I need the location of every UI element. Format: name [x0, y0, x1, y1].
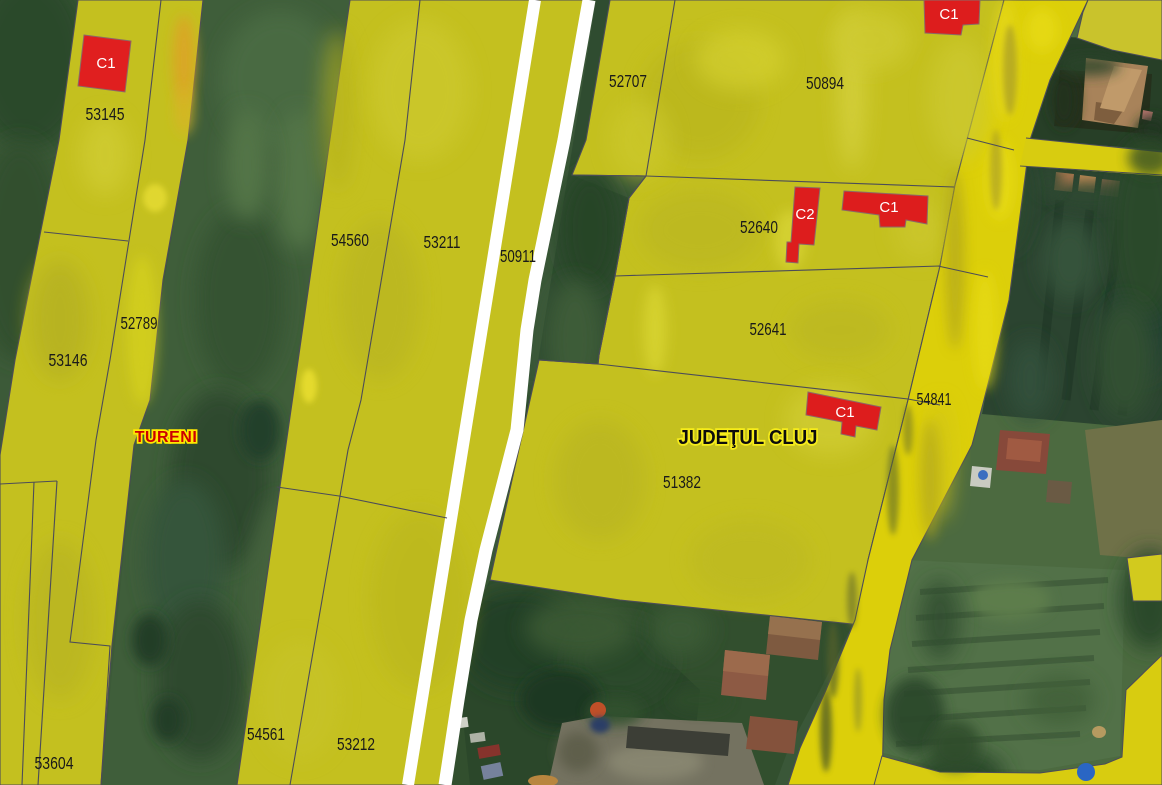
- svg-text:54560: 54560: [331, 230, 369, 250]
- svg-text:53604: 53604: [35, 753, 74, 773]
- svg-text:C1: C1: [939, 6, 958, 23]
- svg-text:52707: 52707: [609, 71, 647, 91]
- svg-text:53211: 53211: [424, 232, 461, 252]
- svg-text:53145: 53145: [86, 104, 125, 124]
- svg-text:C2: C2: [795, 206, 814, 223]
- svg-text:51382: 51382: [663, 472, 701, 492]
- svg-text:50894: 50894: [806, 73, 844, 93]
- svg-text:50911: 50911: [500, 246, 536, 266]
- svg-text:C1: C1: [835, 404, 854, 421]
- svg-text:C1: C1: [879, 199, 898, 216]
- svg-text:TURENI: TURENI: [135, 429, 198, 446]
- svg-text:54841: 54841: [917, 389, 952, 409]
- svg-text:C1: C1: [96, 55, 115, 72]
- svg-text:52640: 52640: [740, 217, 778, 237]
- svg-text:52789: 52789: [121, 313, 158, 333]
- svg-text:53146: 53146: [49, 350, 88, 370]
- svg-text:JUDEŢUL CLUJ: JUDEŢUL CLUJ: [679, 427, 818, 449]
- svg-text:52641: 52641: [750, 319, 787, 339]
- svg-text:54561: 54561: [247, 724, 285, 744]
- svg-text:53212: 53212: [337, 734, 375, 754]
